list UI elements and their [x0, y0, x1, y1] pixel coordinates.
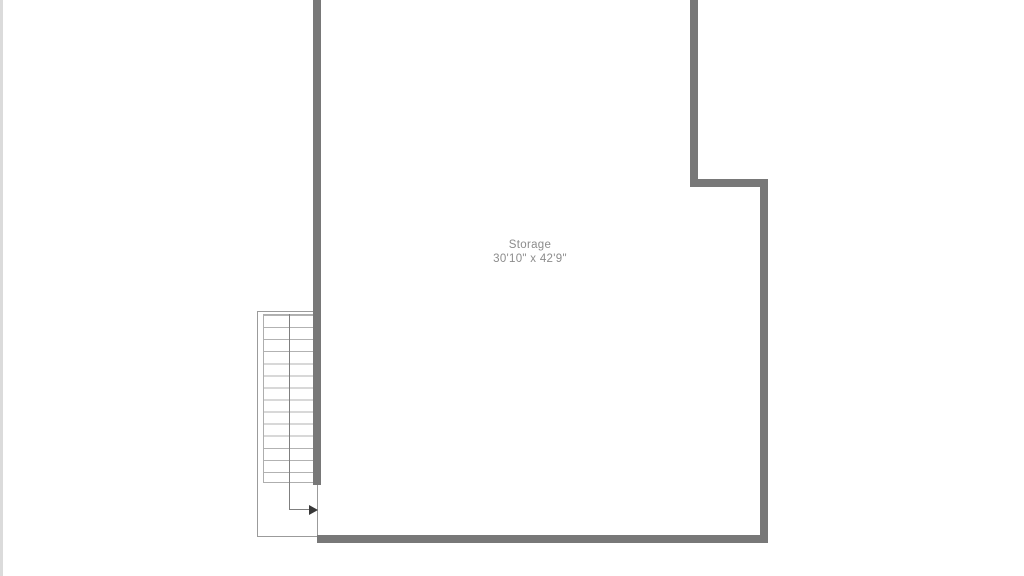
image-edge-strip-left [0, 0, 3, 576]
wall-bottom [317, 535, 768, 543]
room-name: Storage [430, 238, 630, 252]
stair-direction-arrow-shaft [289, 509, 310, 510]
wall-right-jog [690, 179, 768, 187]
stair-direction-arrow-icon [309, 505, 318, 515]
stair-walk-line [289, 314, 290, 510]
room-dimensions: 30'10" x 42'9" [430, 252, 630, 266]
room-label: Storage 30'10" x 42'9" [430, 238, 630, 266]
wall-right-lower [760, 179, 768, 543]
floor-plan-canvas: Storage 30'10" x 42'9" [0, 0, 1024, 576]
wall-left [313, 0, 321, 485]
wall-right-upper [690, 0, 698, 187]
